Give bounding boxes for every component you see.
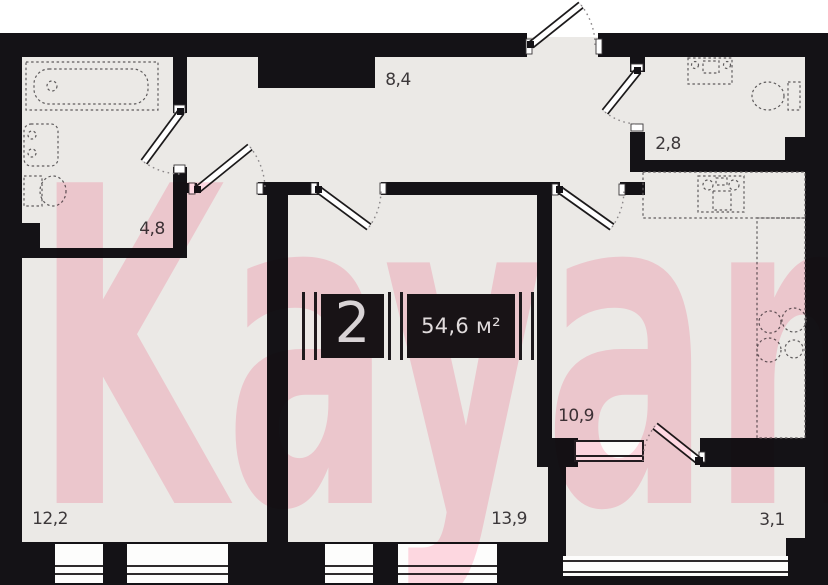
room-count-box: 2 bbox=[321, 294, 384, 358]
door-wc bbox=[605, 67, 641, 124]
room-label-living-room: 13,9 bbox=[491, 509, 527, 529]
apartment-info-badge: 2 54,6 м² bbox=[302, 292, 534, 360]
washbasin-icon bbox=[24, 124, 58, 166]
badge-rule bbox=[388, 292, 391, 360]
room-label-wc: 2,8 bbox=[655, 134, 681, 154]
toilet-icon bbox=[24, 176, 66, 206]
total-area-value: 54,6 м² bbox=[421, 314, 501, 338]
kitchen-sink-icon bbox=[698, 176, 744, 212]
door-living-room bbox=[315, 186, 381, 227]
badge-rule bbox=[314, 292, 317, 360]
floor-plan: 8,4 2,8 4,8 10,9 12,2 13,9 3,1 Kayan 2 5… bbox=[0, 0, 828, 585]
door-kitchen bbox=[556, 186, 624, 227]
door-frame-markers bbox=[174, 39, 705, 462]
badge-rule bbox=[302, 292, 305, 360]
door-balcony bbox=[643, 426, 703, 465]
badge-rule bbox=[400, 292, 403, 360]
room-label-kitchen: 10,9 bbox=[558, 406, 594, 426]
room-label-bedroom: 12,2 bbox=[32, 509, 68, 529]
door-entrance bbox=[527, 5, 595, 48]
room-label-bathroom: 4,8 bbox=[139, 219, 165, 239]
badge-rule bbox=[519, 292, 522, 360]
door-bathroom bbox=[144, 108, 184, 174]
badge-rule bbox=[531, 292, 534, 360]
wc-sink-icon bbox=[688, 58, 732, 84]
total-area-box: 54,6 м² bbox=[407, 294, 515, 358]
wc-toilet-icon bbox=[752, 82, 800, 110]
room-label-hallway: 8,4 bbox=[385, 70, 411, 90]
bathtub-icon bbox=[26, 62, 158, 110]
stove-icon bbox=[757, 308, 806, 362]
room-count-value: 2 bbox=[335, 296, 371, 352]
door-bedroom bbox=[194, 147, 265, 193]
room-label-balcony: 3,1 bbox=[759, 510, 785, 530]
